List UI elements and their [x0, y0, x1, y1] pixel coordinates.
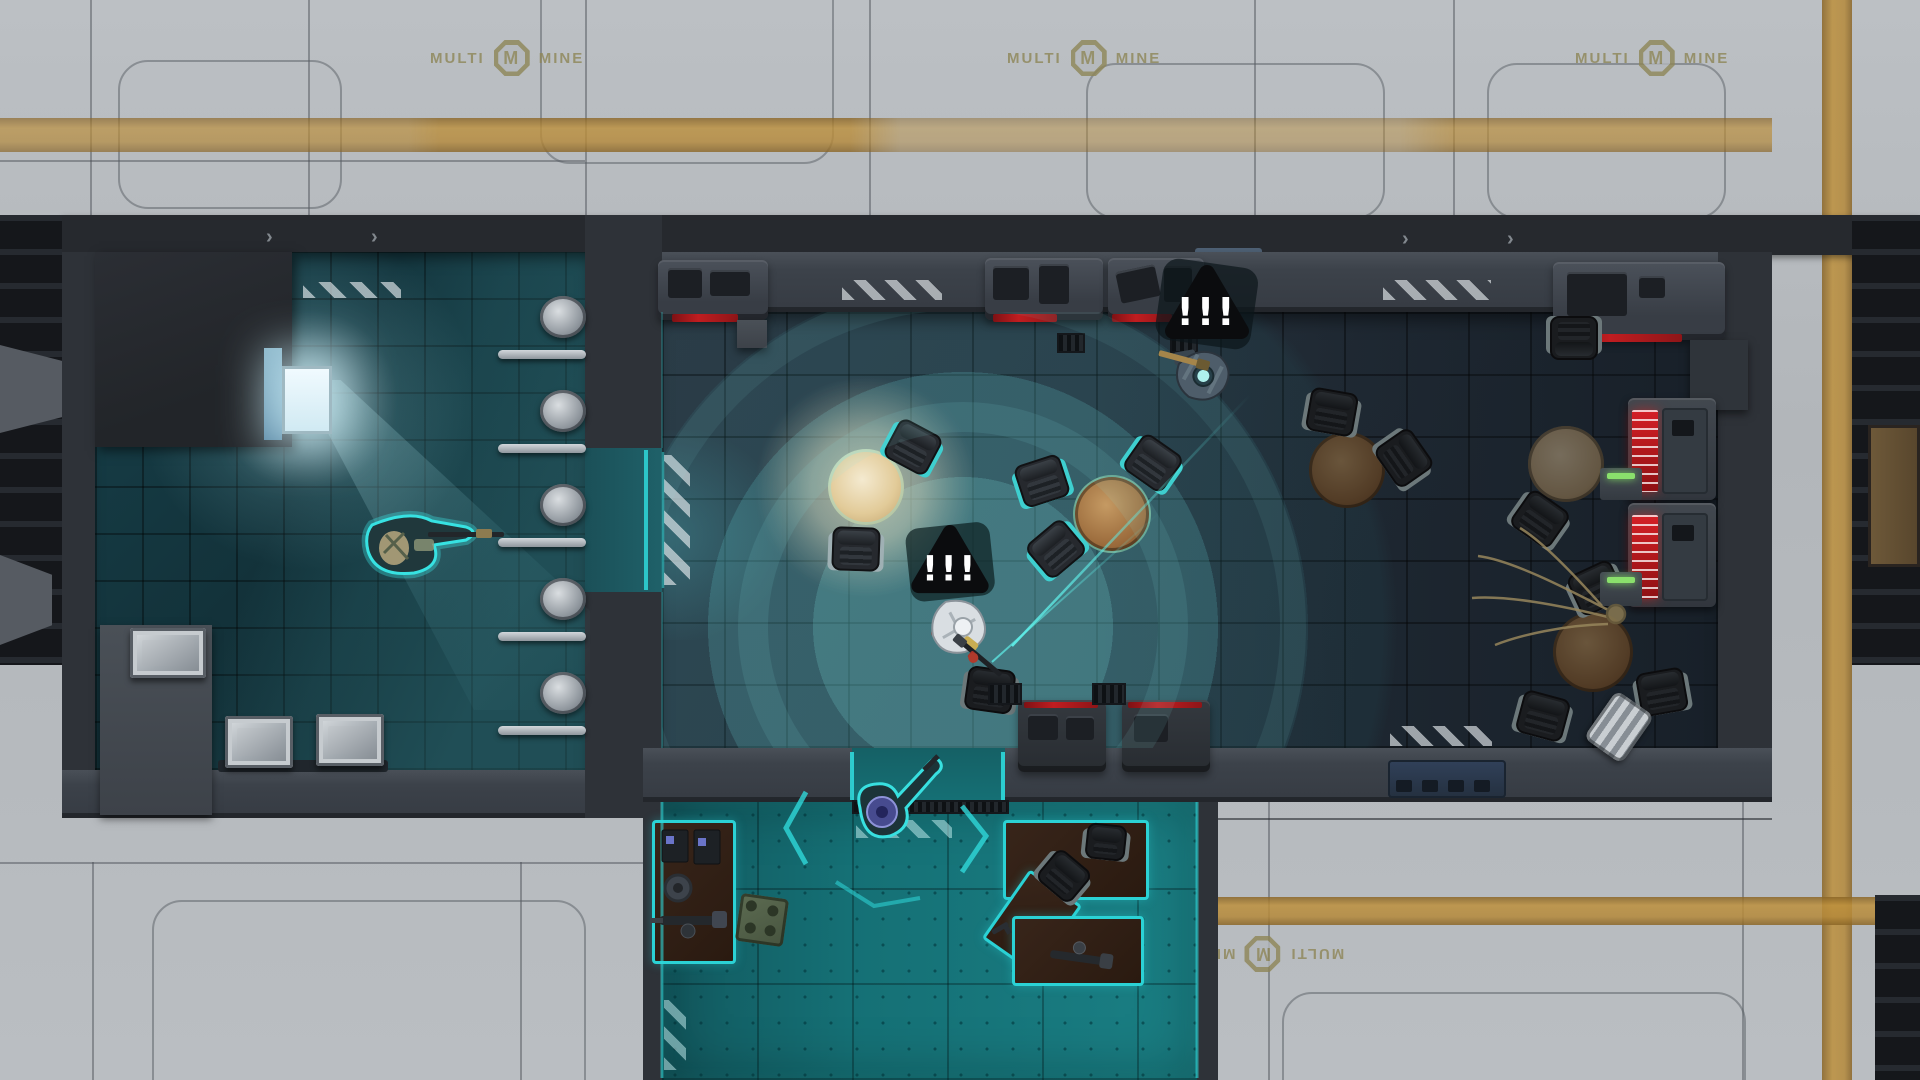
exterior-recess: [1875, 895, 1920, 1080]
booth-divider: [498, 632, 586, 641]
counter-red-stripe: [672, 314, 738, 322]
west-doorway-floor[interactable]: [585, 448, 662, 592]
dispenser[interactable]: [1600, 468, 1642, 500]
multimine-logo: MULTI M MINE: [430, 40, 584, 76]
armory-east-wall: [1197, 802, 1218, 1080]
booth-divider: [498, 350, 586, 359]
shared-wall: [585, 215, 662, 448]
logo-text-mine: MINE: [1684, 50, 1730, 67]
panel-seam: [869, 0, 871, 215]
round-table: [1528, 426, 1604, 502]
stool: [540, 390, 586, 432]
weapon-bench[interactable]: [1012, 916, 1144, 986]
hull-stripe: [1218, 897, 1920, 925]
bar-counter: [1108, 258, 1204, 320]
hazard-stripe: [1383, 280, 1491, 300]
stool: [540, 578, 586, 620]
round-table: [1553, 612, 1633, 692]
floor-vent: [1170, 333, 1198, 353]
multimine-monogram-icon: M: [1071, 40, 1107, 76]
airlock-door[interactable]: [1868, 425, 1920, 567]
stool: [540, 484, 586, 526]
glowing-display-case[interactable]: [282, 366, 332, 434]
booth-divider: [498, 538, 586, 547]
stool: [540, 296, 586, 338]
booth-divider: [498, 444, 586, 453]
panel-seam: [92, 862, 94, 1080]
panel-outline: [1282, 992, 1746, 1080]
floor-vent: [1092, 683, 1126, 705]
door-threshold-vent: [852, 800, 1009, 814]
logo-text-multi: MULTI: [1575, 50, 1630, 67]
hazard-stripe: [664, 455, 690, 585]
panel-seam: [0, 862, 643, 864]
wall-chevron-icon: ›: [1402, 228, 1409, 251]
panel-outline: [152, 900, 586, 1080]
hull-stripe: [0, 118, 1772, 152]
round-table: [1309, 432, 1385, 508]
hazard-stripe: [842, 280, 942, 300]
chair: [1550, 316, 1598, 360]
glass-panel: [264, 348, 282, 440]
multimine-logo: MULTI M MINE: [1575, 40, 1729, 76]
hazard-stripe: [856, 820, 952, 838]
dispenser[interactable]: [1600, 572, 1642, 606]
ammo-crate[interactable]: [735, 893, 789, 947]
supply-crate[interactable]: [130, 628, 206, 678]
logo-text-multi: MULTI: [1007, 50, 1062, 67]
weapon-bench[interactable]: [652, 820, 736, 964]
cantina-bottom-wall: [643, 748, 852, 802]
logo-text-mine: MINE: [1116, 50, 1162, 67]
chair: [831, 526, 881, 572]
floor-vent: [988, 683, 1022, 705]
wall-chevron-icon: ›: [1507, 228, 1514, 251]
hazard-stripe: [664, 1000, 686, 1070]
multimine-monogram-icon: M: [494, 40, 530, 76]
counter-red-stripe: [993, 314, 1057, 322]
multimine-monogram-icon: M: [1245, 936, 1281, 972]
wall-chevron-icon: ›: [371, 226, 378, 249]
hull-shadow-band: [62, 215, 1920, 255]
panel-seam: [90, 0, 92, 215]
service-counter: [1018, 700, 1106, 772]
round-table: [1073, 475, 1151, 553]
floor-vent: [1057, 333, 1085, 353]
multimine-monogram-icon: M: [1639, 40, 1675, 76]
logo-text-mine: MINE: [539, 50, 585, 67]
left-room-west-wall: [62, 252, 95, 818]
wall-chevron-icon: ›: [266, 226, 273, 249]
chair: [1305, 386, 1360, 438]
cantina-east-wall: [1718, 252, 1772, 800]
bar-counter: [985, 258, 1103, 320]
booth-divider: [498, 726, 586, 735]
armory-doorway-floor[interactable]: [852, 748, 1005, 802]
storage-alcove: [95, 252, 292, 447]
hazard-stripe: [303, 282, 401, 298]
panel-seam: [1453, 0, 1455, 215]
logo-text-multi: MULTI: [1290, 946, 1345, 963]
bar-counter: [658, 260, 768, 320]
counter-red-stripe: [1112, 314, 1172, 322]
hazard-stripe: [1390, 726, 1492, 746]
wall-machine: [1388, 760, 1506, 798]
logo-text-multi: MULTI: [430, 50, 485, 67]
game-viewport: MULTI M MINE MULTI M MINE MULTI M MINE M…: [0, 0, 1920, 1080]
counter-step: [737, 320, 767, 348]
supply-crate[interactable]: [225, 716, 293, 768]
service-counter: [1122, 700, 1210, 772]
multimine-logo: MULTI M MINE: [1007, 40, 1161, 76]
stool: [540, 672, 586, 714]
supply-crate[interactable]: [316, 714, 384, 766]
chair: [1084, 822, 1128, 862]
